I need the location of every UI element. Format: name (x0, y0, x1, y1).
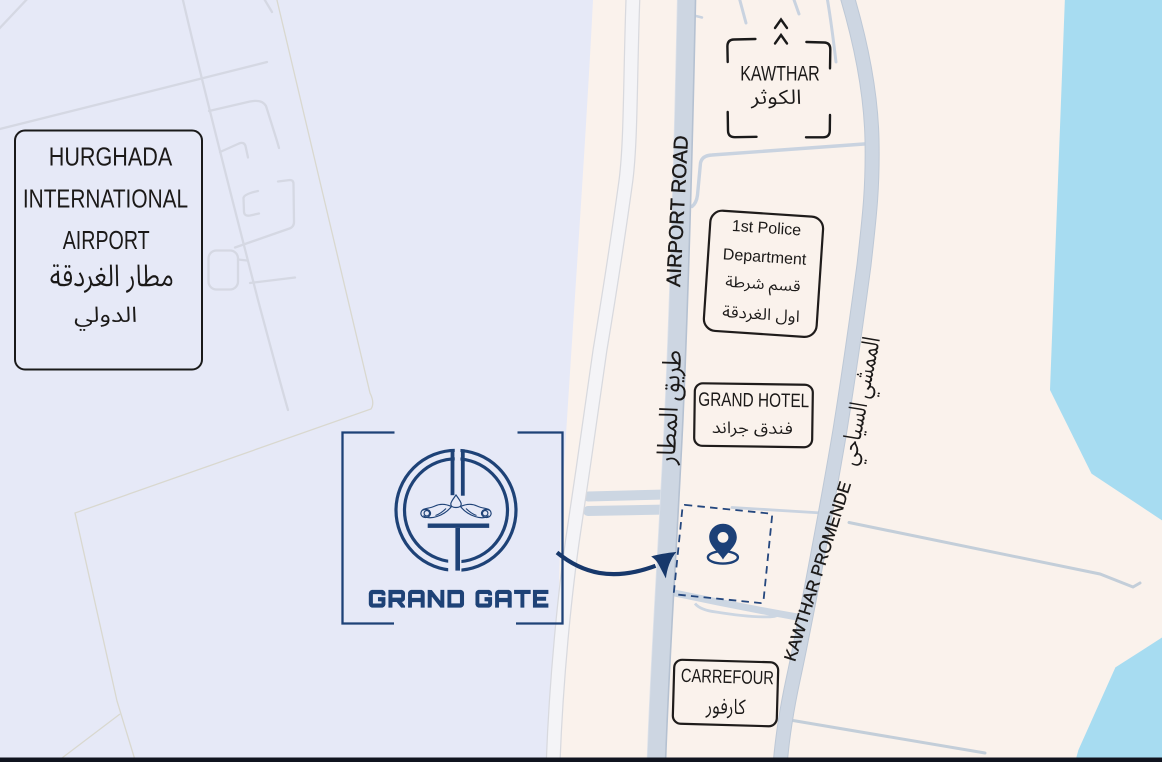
svg-text:GRAND HOTEL: GRAND HOTEL (698, 389, 809, 413)
svg-text:KAWTHAR: KAWTHAR (740, 63, 820, 86)
svg-text:AIRPORT: AIRPORT (63, 225, 150, 255)
svg-text:INTERNATIONAL: INTERNATIONAL (23, 184, 188, 214)
svg-text:CARREFOUR: CARREFOUR (681, 666, 775, 690)
svg-text:HURGHADA: HURGHADA (49, 142, 173, 172)
